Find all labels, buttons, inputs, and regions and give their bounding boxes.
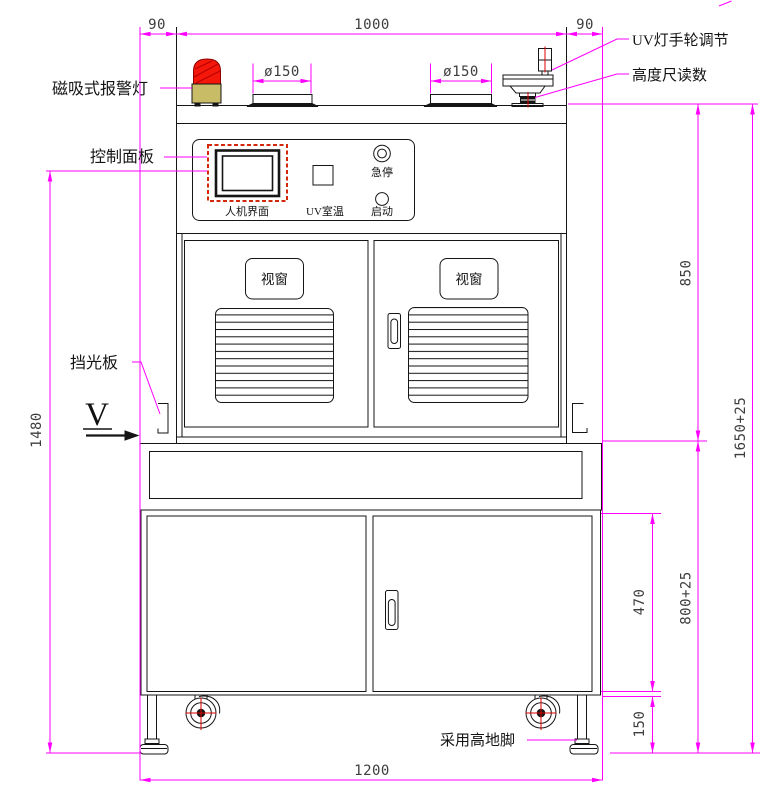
label-control-panel: 控制面板 bbox=[90, 148, 154, 166]
uv-handwheel-leader bbox=[552, 39, 629, 70]
dimension-lines bbox=[46, 1, 760, 781]
dim-470: 470 bbox=[632, 589, 648, 616]
cad-drawing-canvas: 90 1000 90 ø150 ø150 850 1650+25 800+25 … bbox=[0, 0, 769, 787]
dim-1650-25: 1650+25 bbox=[733, 397, 749, 460]
label-leveling-foot: 采用高地脚 bbox=[440, 732, 515, 749]
lower-door-left[interactable] bbox=[147, 516, 366, 692]
label-view-marker: V bbox=[85, 397, 109, 433]
alarm-light bbox=[192, 59, 221, 106]
light-shield-leader bbox=[132, 362, 160, 414]
lower-cabinet bbox=[141, 510, 601, 695]
caster-right bbox=[526, 695, 560, 728]
alarm-dome bbox=[194, 59, 221, 84]
label-light-shield: 挡光板 bbox=[70, 354, 118, 372]
table-band bbox=[140, 444, 602, 511]
label-uv-handwheel: UV灯手轮调节 bbox=[632, 32, 729, 49]
light-shield-bracket-left bbox=[158, 404, 168, 434]
estop-button[interactable] bbox=[374, 145, 391, 162]
lower-door-right[interactable] bbox=[373, 516, 592, 692]
label-window-left: 视窗 bbox=[261, 271, 288, 287]
leveling-foot-left bbox=[140, 695, 168, 754]
stray-leader-fragment bbox=[719, 1, 732, 6]
dim-850: 850 bbox=[679, 260, 695, 287]
dim-top-right-90: 90 bbox=[576, 17, 594, 33]
louver-vent-left bbox=[216, 309, 334, 403]
label-window-right: 视窗 bbox=[456, 271, 483, 287]
label-estop: 急停 bbox=[371, 165, 393, 179]
label-height-gauge: 高度尺读数 bbox=[632, 67, 707, 84]
dim-top-left-90: 90 bbox=[148, 17, 166, 33]
dim-dia150-left: ø150 bbox=[264, 64, 300, 80]
machine-body bbox=[83, 27, 602, 754]
leveling-foot-right bbox=[570, 695, 598, 754]
label-alarm-light: 磁吸式报警灯 bbox=[52, 80, 148, 98]
platform-left bbox=[247, 95, 318, 107]
alarm-base bbox=[192, 84, 221, 103]
label-hmi: 人机界面 bbox=[225, 204, 269, 218]
machine-front-view-drawing: 90 1000 90 ø150 ø150 850 1650+25 800+25 … bbox=[0, 0, 769, 787]
dim-1200: 1200 bbox=[354, 763, 390, 779]
start-button[interactable] bbox=[376, 193, 389, 206]
hmi-highlight-frame bbox=[208, 145, 287, 201]
hmi-screen[interactable] bbox=[223, 156, 273, 191]
hmi-screen-frame bbox=[216, 151, 279, 197]
lower-door-handle[interactable] bbox=[386, 591, 399, 630]
label-uv-temp: UV室温 bbox=[306, 204, 344, 218]
uv-temp-meter bbox=[313, 166, 333, 186]
dim-1480: 1480 bbox=[29, 412, 45, 448]
light-shield-bracket-right bbox=[573, 404, 588, 433]
dim-top-1000: 1000 bbox=[354, 17, 390, 33]
caster-left bbox=[186, 695, 220, 728]
dim-800-25: 800+25 bbox=[679, 571, 695, 625]
louver-vent-right bbox=[409, 308, 529, 403]
platform-right bbox=[424, 95, 497, 107]
dim-150: 150 bbox=[632, 711, 648, 738]
label-start: 启动 bbox=[371, 205, 393, 218]
dim-dia150-right: ø150 bbox=[443, 64, 479, 80]
